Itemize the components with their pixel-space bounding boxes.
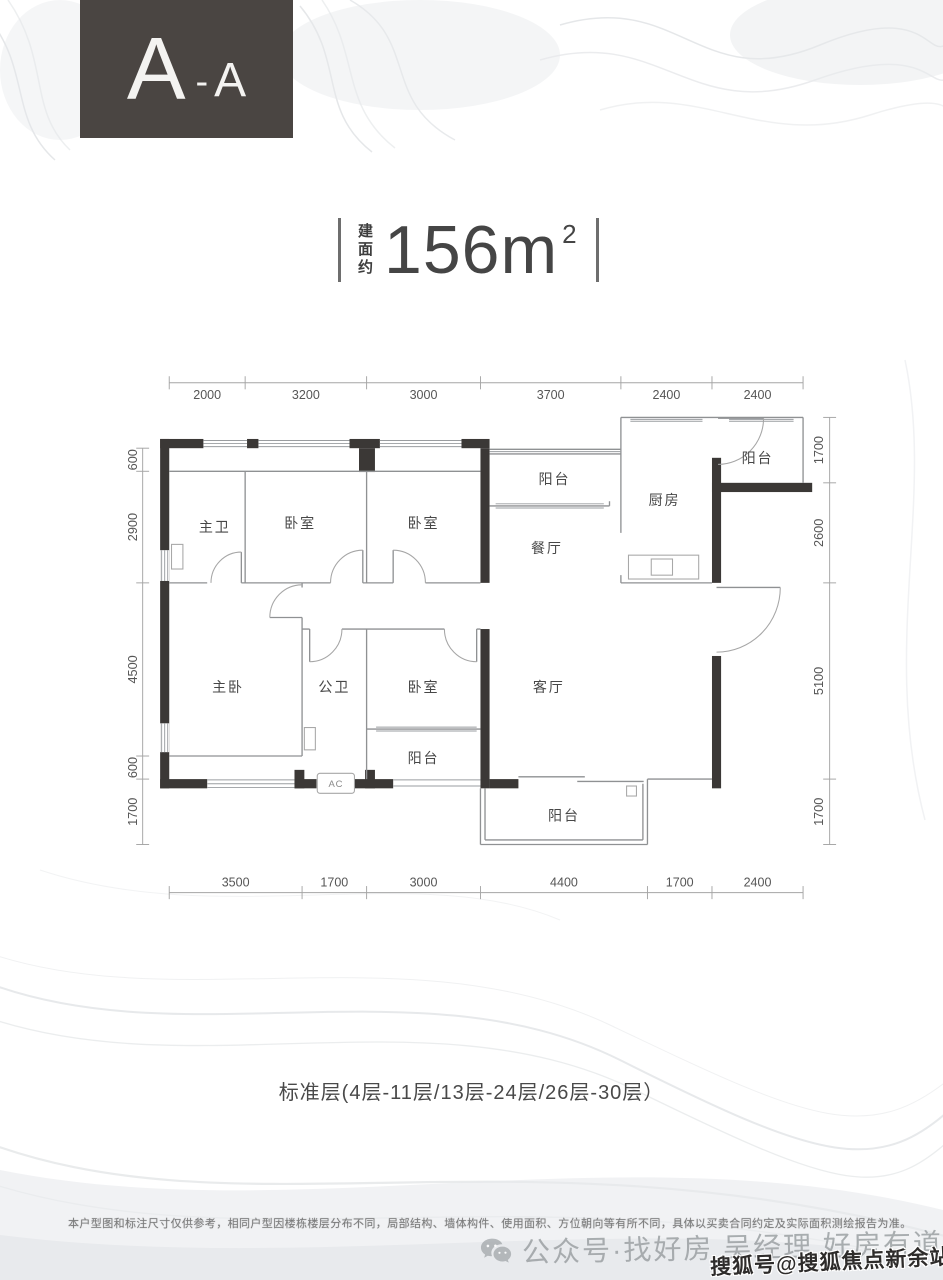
room-label: 客厅 bbox=[533, 679, 565, 695]
floorplan-poster: A - A 建面约 156m2 bbox=[0, 0, 943, 1280]
room-label: 卧室 bbox=[408, 679, 440, 695]
dim-bottom-label: 1700 bbox=[320, 875, 348, 889]
dim-bottom-label: 3000 bbox=[410, 875, 438, 889]
headline-right-rule bbox=[596, 218, 599, 282]
dim-top-label: 2000 bbox=[193, 388, 221, 402]
floorplan-drawing: 主卫 卧室 卧室 阳台 餐厅 厨房 阳台 主卧 公卫 卧室 客厅 阳台 阳台 A… bbox=[118, 352, 860, 908]
dim-left-label: 600 bbox=[126, 449, 140, 470]
doors bbox=[211, 418, 780, 662]
wechat-icon bbox=[478, 1233, 515, 1270]
area-superscript: 2 bbox=[562, 219, 577, 249]
badge-letter-small: A bbox=[214, 53, 246, 108]
dim-right-label: 2600 bbox=[812, 519, 826, 547]
dim-left-label: 1700 bbox=[126, 798, 140, 826]
railings bbox=[207, 419, 793, 787]
area-headline: 建面约 156m2 bbox=[338, 216, 599, 284]
headline-left-rule bbox=[338, 218, 341, 282]
dim-bottom-label: 3500 bbox=[222, 875, 250, 889]
room-label: 阳台 bbox=[539, 471, 571, 487]
dim-top-label: 3700 bbox=[537, 388, 565, 402]
room-label: 卧室 bbox=[284, 515, 316, 531]
room-label: 主卧 bbox=[212, 679, 244, 695]
dim-left-label: 2900 bbox=[126, 513, 140, 541]
wall-windows bbox=[160, 440, 461, 752]
plan-type-badge: A - A bbox=[80, 0, 293, 138]
room-label: 阳台 bbox=[548, 808, 580, 824]
dim-right-label: 1700 bbox=[812, 436, 826, 464]
dim-right-label: 1700 bbox=[812, 798, 826, 826]
ac-label: AC bbox=[329, 779, 344, 790]
dim-top-label: 2400 bbox=[653, 388, 681, 402]
area-prefix: 建面约 bbox=[357, 223, 372, 277]
room-label: 公卫 bbox=[318, 679, 350, 695]
room-label: 主卫 bbox=[199, 519, 231, 535]
badge-letter-large: A bbox=[127, 25, 186, 113]
area-value: 156m2 bbox=[384, 216, 574, 284]
floor-note: 标准层(4层-11层/13层-24层/26层-30层） bbox=[0, 1076, 943, 1105]
room-label: 阳台 bbox=[408, 750, 440, 766]
dim-top-label: 3200 bbox=[292, 388, 320, 402]
dim-left-label: 4500 bbox=[126, 655, 140, 683]
dim-bottom-label: 2400 bbox=[744, 875, 772, 889]
dim-bottom-label: 4400 bbox=[550, 875, 578, 889]
badge-dash: - bbox=[196, 61, 209, 104]
room-label: 卧室 bbox=[408, 515, 440, 531]
dim-right-label: 5100 bbox=[812, 667, 826, 695]
dim-bottom-label: 1700 bbox=[666, 875, 694, 889]
room-label: 阳台 bbox=[742, 450, 774, 466]
dim-top-label: 2400 bbox=[744, 388, 772, 402]
room-label: 厨房 bbox=[649, 492, 681, 508]
dim-left-label: 600 bbox=[126, 757, 140, 778]
walls bbox=[160, 439, 812, 788]
room-label: 餐厅 bbox=[531, 540, 563, 556]
dim-top-label: 3000 bbox=[410, 388, 438, 402]
